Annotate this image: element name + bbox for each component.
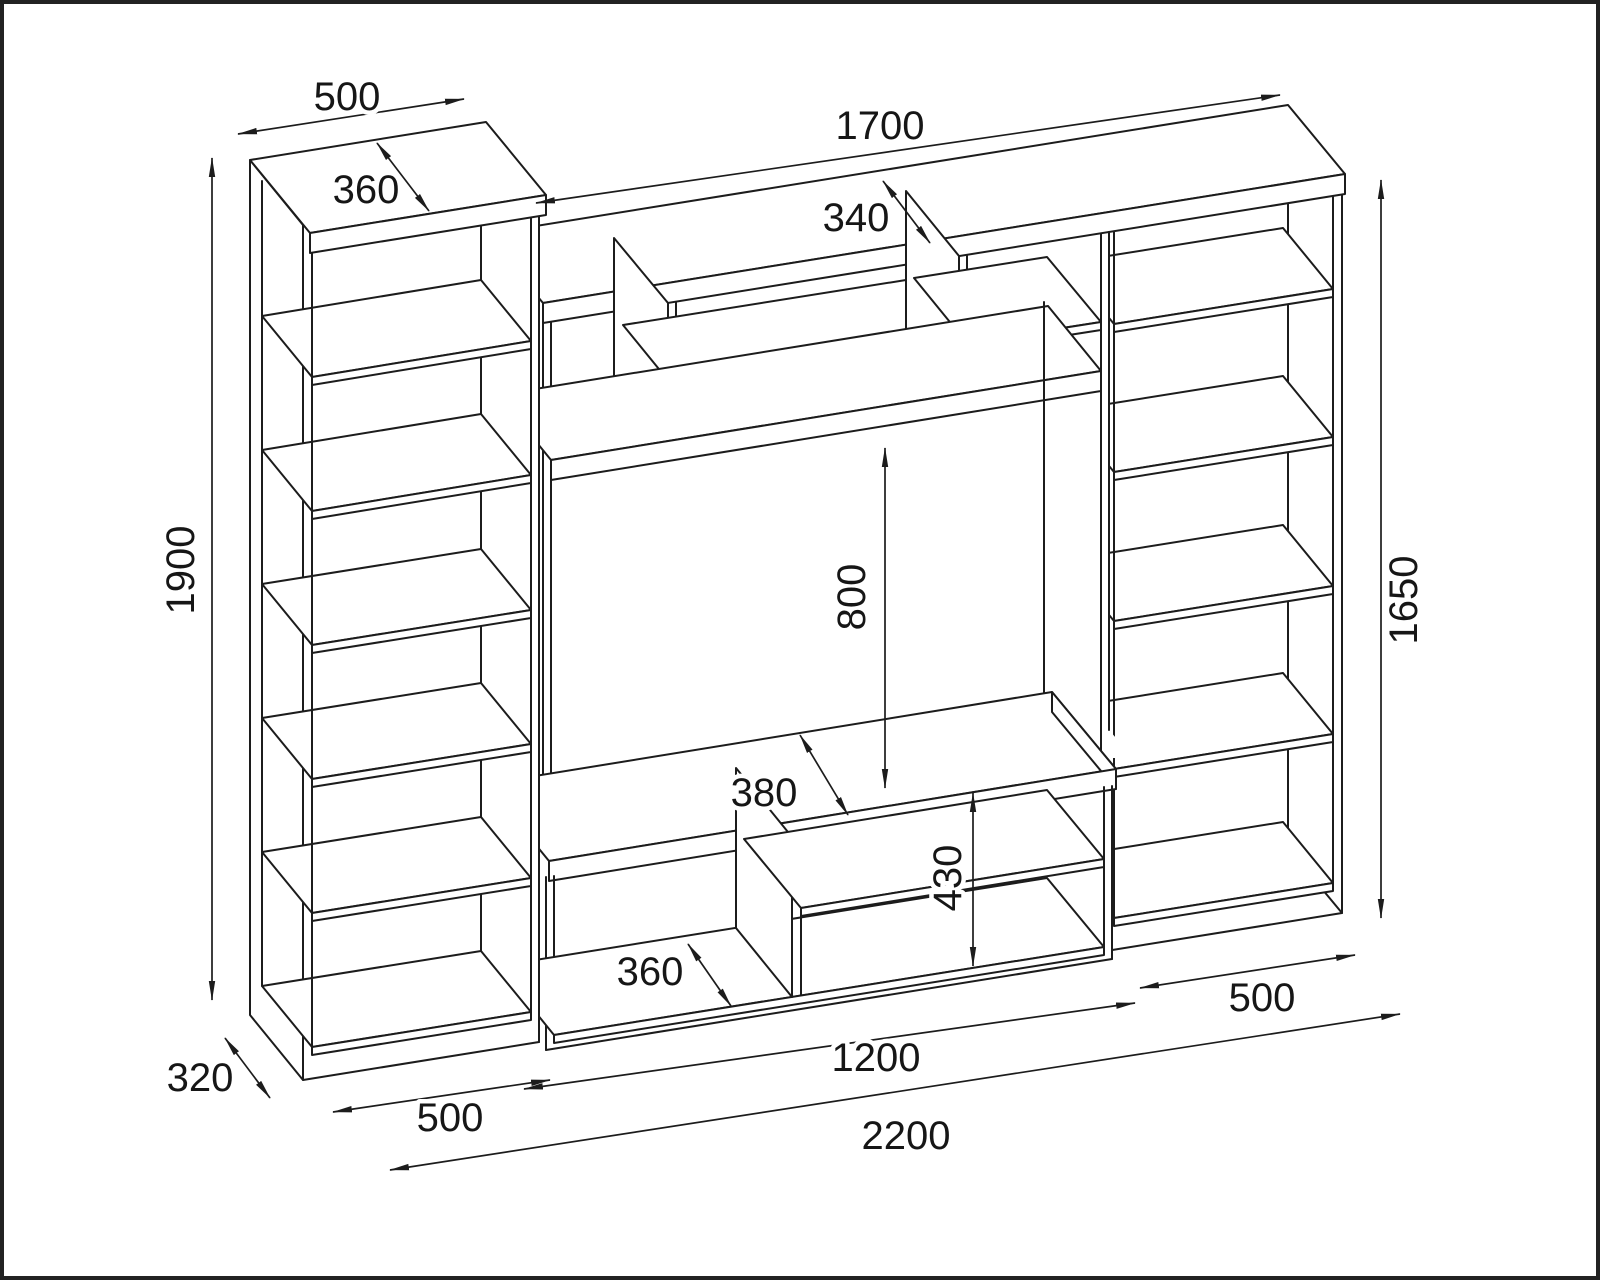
dim-label-right-base-width: 500: [1229, 976, 1296, 1020]
dim-label-base-height: 430: [926, 845, 970, 912]
dim-label-niche-height: 800: [830, 564, 874, 631]
furniture-dimension-drawing: 500 360 1900 1700 340 800 1650 380 430 3…: [0, 0, 1600, 1280]
dim-label-top-width: 1700: [836, 104, 925, 148]
dim-label-top-depth: 340: [823, 196, 890, 240]
dim-label-right-height: 1650: [1382, 556, 1426, 645]
left-shelf-unit: [250, 122, 546, 1080]
dim-label-left-height: 1900: [159, 526, 203, 615]
dim-label-bench-depth: 380: [731, 771, 798, 815]
dim-label-left-top-width: 500: [314, 75, 381, 119]
dim-label-center-width: 1200: [832, 1036, 921, 1080]
dim-label-left-top-depth: 360: [333, 168, 400, 212]
dim-label-left-base-depth: 320: [167, 1056, 234, 1100]
technical-drawing-page: 500 360 1900 1700 340 800 1650 380 430 3…: [0, 0, 1600, 1280]
dim-label-total-width: 2200: [862, 1114, 951, 1158]
dim-label-base-depth: 360: [617, 950, 684, 994]
dim-label-left-base-width: 500: [417, 1096, 484, 1140]
